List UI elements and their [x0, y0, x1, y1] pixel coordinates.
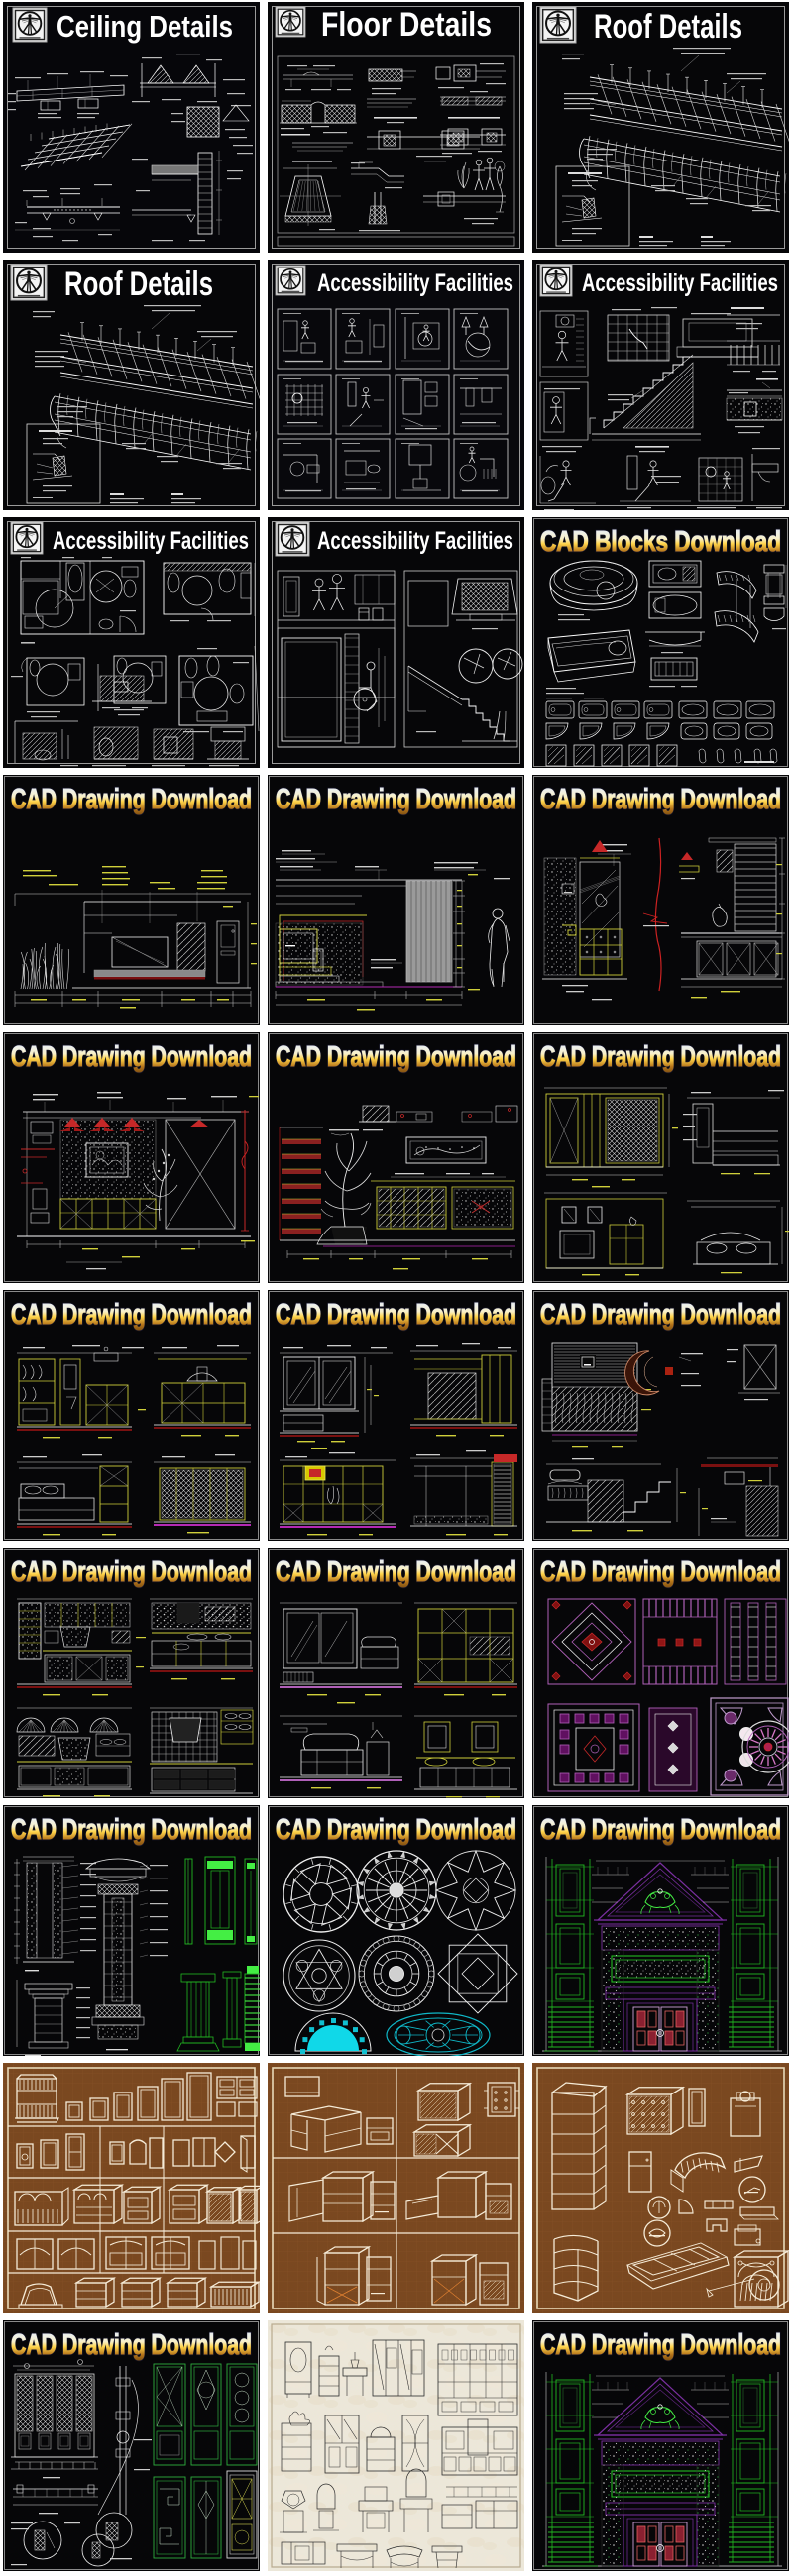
svg-text:CAD Drawing Download: CAD Drawing Download: [540, 1556, 781, 1588]
svg-text:CAD Blocks Download: CAD Blocks Download: [540, 526, 781, 558]
svg-text:Accessibility Facilities: Accessibility Facilities: [317, 527, 513, 555]
svg-text:CAD Drawing Download: CAD Drawing Download: [540, 784, 781, 815]
svg-text:Ceiling Details: Ceiling Details: [57, 9, 233, 44]
svg-text:CAD Drawing Download: CAD Drawing Download: [276, 784, 516, 815]
svg-text:CAD Drawing Download: CAD Drawing Download: [11, 1556, 252, 1588]
svg-text:Roof Details: Roof Details: [594, 8, 742, 46]
svg-text:Roof Details: Roof Details: [64, 266, 213, 303]
svg-text:CAD Drawing Download: CAD Drawing Download: [11, 1814, 252, 1846]
svg-text:CAD Drawing Download: CAD Drawing Download: [276, 1814, 516, 1846]
svg-text:CAD Drawing Download: CAD Drawing Download: [540, 2329, 781, 2361]
svg-text:CAD Drawing Download: CAD Drawing Download: [276, 1299, 516, 1331]
svg-text:CAD Drawing Download: CAD Drawing Download: [11, 2329, 252, 2361]
svg-text:CAD Drawing Download: CAD Drawing Download: [11, 1299, 252, 1331]
svg-text:Accessibility Facilities: Accessibility Facilities: [582, 269, 778, 297]
svg-text:CAD Drawing Download: CAD Drawing Download: [11, 784, 252, 815]
svg-text:CAD Drawing Download: CAD Drawing Download: [540, 1041, 781, 1073]
svg-text:CAD Drawing Download: CAD Drawing Download: [540, 1299, 781, 1331]
svg-text:Accessibility Facilities: Accessibility Facilities: [317, 269, 513, 297]
svg-text:Accessibility Facilities: Accessibility Facilities: [53, 527, 249, 555]
svg-text:CAD Drawing Download: CAD Drawing Download: [11, 1041, 252, 1073]
svg-text:CAD Drawing Download: CAD Drawing Download: [276, 1041, 516, 1073]
svg-text:CAD Drawing Download: CAD Drawing Download: [276, 1556, 516, 1588]
svg-text:Floor Details: Floor Details: [321, 6, 492, 44]
svg-text:CAD Drawing Download: CAD Drawing Download: [540, 1814, 781, 1846]
